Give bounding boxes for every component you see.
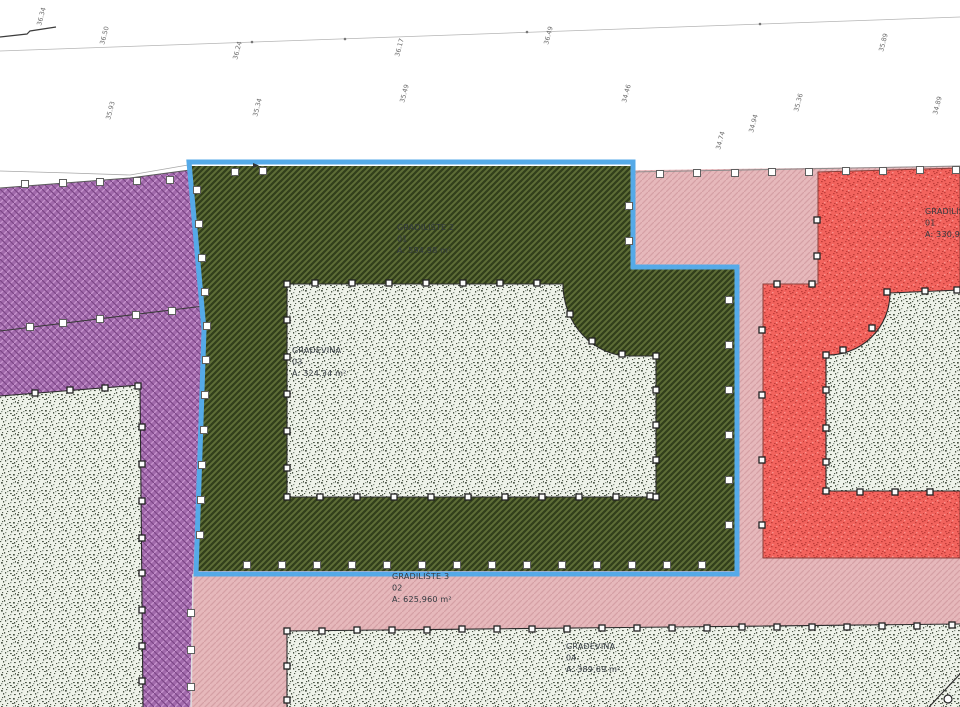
footprint-vertex-marker[interactable] bbox=[647, 493, 653, 499]
parcel-vertex-marker[interactable] bbox=[726, 432, 733, 439]
footprint-vertex-marker[interactable] bbox=[840, 347, 846, 353]
footprint-vertex-marker[interactable] bbox=[428, 494, 434, 500]
footprint-vertex-marker[interactable] bbox=[823, 425, 829, 431]
footprint-vertex-marker[interactable] bbox=[653, 457, 659, 463]
parcel-vertex-marker[interactable] bbox=[279, 562, 286, 569]
parcel-vertex-marker[interactable] bbox=[27, 324, 34, 331]
footprint-vertex-marker[interactable] bbox=[139, 424, 145, 430]
footprint-vertex-marker[interactable] bbox=[534, 280, 540, 286]
footprint-vertex-marker[interactable] bbox=[823, 488, 829, 494]
footprint-vertex-marker[interactable] bbox=[284, 428, 290, 434]
parcel-vertex-marker[interactable] bbox=[726, 477, 733, 484]
parcel-vertex-marker[interactable] bbox=[60, 180, 67, 187]
footprint-vertex-marker[interactable] bbox=[619, 351, 625, 357]
footprint-vertex-marker[interactable] bbox=[284, 628, 290, 634]
footprint-vertex-marker[interactable] bbox=[139, 607, 145, 613]
footprint-vertex-marker[interactable] bbox=[465, 494, 471, 500]
footprint-vertex-marker[interactable] bbox=[892, 489, 898, 495]
parcel-vertex-marker[interactable] bbox=[419, 562, 426, 569]
footprint-vertex-marker[interactable] bbox=[502, 494, 508, 500]
footprint-vertex-marker[interactable] bbox=[139, 570, 145, 576]
footprint-vertex-marker[interactable] bbox=[284, 663, 290, 669]
parcel-vertex-marker[interactable] bbox=[880, 168, 887, 175]
footprint-vertex-marker[interactable] bbox=[354, 627, 360, 633]
parcel-vertex-marker[interactable] bbox=[169, 308, 176, 315]
footprint-vertex-marker[interactable] bbox=[391, 494, 397, 500]
footprint-vertex-marker[interactable] bbox=[139, 678, 145, 684]
footprint-vertex-marker[interactable] bbox=[653, 494, 659, 500]
footprint-vertex-marker[interactable] bbox=[814, 217, 820, 223]
footprint-vertex-marker[interactable] bbox=[949, 622, 955, 628]
footprint-vertex-marker[interactable] bbox=[284, 317, 290, 323]
footprint-vertex-marker[interactable] bbox=[349, 280, 355, 286]
footprint-vertex-marker[interactable] bbox=[759, 457, 765, 463]
parcel-vertex-marker[interactable] bbox=[134, 178, 141, 185]
parcel-vertex-marker[interactable] bbox=[626, 238, 633, 245]
footprint-vertex-marker[interactable] bbox=[653, 422, 659, 428]
footprint-vertex-marker[interactable] bbox=[386, 280, 392, 286]
parcel-vertex-marker[interactable] bbox=[188, 610, 195, 617]
parcel-vertex-marker[interactable] bbox=[133, 312, 140, 319]
footprint-vertex-marker[interactable] bbox=[564, 626, 570, 632]
footprint-vertex-marker[interactable] bbox=[284, 354, 290, 360]
parcel-vertex-marker[interactable] bbox=[232, 169, 239, 176]
footprint-vertex-marker[interactable] bbox=[809, 281, 815, 287]
parcel-vertex-marker[interactable] bbox=[197, 532, 204, 539]
parcel-vertex-marker[interactable] bbox=[188, 647, 195, 654]
parcel-vertex-marker[interactable] bbox=[97, 316, 104, 323]
footprint-vertex-marker[interactable] bbox=[102, 385, 108, 391]
footprint-vertex-marker[interactable] bbox=[497, 280, 503, 286]
footprint-vertex-marker[interactable] bbox=[317, 494, 323, 500]
site-plan-svg: GRADILIŠTE 201A: 594,98 m²GRAĐEVINA03A: … bbox=[0, 0, 960, 707]
footprint-vertex-marker[interactable] bbox=[529, 626, 535, 632]
footprint-vertex-marker[interactable] bbox=[759, 392, 765, 398]
survey-point-dot bbox=[759, 23, 762, 26]
footprint-vertex-marker[interactable] bbox=[284, 281, 290, 287]
parcel-vertex-marker[interactable] bbox=[732, 170, 739, 177]
footprint-vertex-marker[interactable] bbox=[389, 627, 395, 633]
footprint-vertex-marker[interactable] bbox=[669, 625, 675, 631]
parcel-vertex-marker[interactable] bbox=[953, 167, 960, 174]
footprint-vertex-marker[interactable] bbox=[844, 624, 850, 630]
footprint-vertex-marker[interactable] bbox=[139, 461, 145, 467]
parcel-vertex-marker[interactable] bbox=[726, 387, 733, 394]
footprint-vertex-marker[interactable] bbox=[494, 626, 500, 632]
footprint-vertex-marker[interactable] bbox=[739, 624, 745, 630]
parcel-vertex-marker[interactable] bbox=[699, 562, 706, 569]
footprint-vertex-marker[interactable] bbox=[814, 253, 820, 259]
survey-point-dot bbox=[526, 31, 529, 34]
parcel-vertex-marker[interactable] bbox=[489, 562, 496, 569]
footprint-vertex-marker[interactable] bbox=[423, 280, 429, 286]
footprint-vertex-marker[interactable] bbox=[424, 627, 430, 633]
footprint-vertex-marker[interactable] bbox=[774, 624, 780, 630]
parcel-vertex-marker[interactable] bbox=[314, 562, 321, 569]
footprint-vertex-marker[interactable] bbox=[809, 624, 815, 630]
footprint-vertex-marker[interactable] bbox=[319, 628, 325, 634]
footprint-vertex-marker[interactable] bbox=[884, 289, 890, 295]
parcel-vertex-marker[interactable] bbox=[201, 427, 208, 434]
parcel-vertex-marker[interactable] bbox=[917, 167, 924, 174]
footprint-vertex-marker[interactable] bbox=[823, 387, 829, 393]
building-footprint-purple[interactable] bbox=[0, 385, 143, 707]
footprint-vertex-marker[interactable] bbox=[139, 498, 145, 504]
parcel-vertex-marker[interactable] bbox=[664, 562, 671, 569]
footprint-vertex-marker[interactable] bbox=[774, 281, 780, 287]
footprint-vertex-marker[interactable] bbox=[284, 391, 290, 397]
footprint-vertex-marker[interactable] bbox=[576, 494, 582, 500]
footprint-vertex-marker[interactable] bbox=[459, 626, 465, 632]
parcel-vertex-marker[interactable] bbox=[626, 203, 633, 210]
survey-point-dot bbox=[251, 41, 254, 44]
parcel-vertex-marker[interactable] bbox=[454, 562, 461, 569]
footprint-vertex-marker[interactable] bbox=[613, 494, 619, 500]
parcel-vertex-marker[interactable] bbox=[204, 323, 211, 330]
footprint-vertex-marker[interactable] bbox=[634, 625, 640, 631]
circle-vertex-marker[interactable] bbox=[944, 695, 952, 703]
footprint-vertex-marker[interactable] bbox=[653, 387, 659, 393]
parcel-vertex-marker[interactable] bbox=[244, 562, 251, 569]
parcel-vertex-marker[interactable] bbox=[60, 320, 67, 327]
footprint-vertex-marker[interactable] bbox=[922, 288, 928, 294]
parcel-vertex-marker[interactable] bbox=[199, 462, 206, 469]
footprint-vertex-marker[interactable] bbox=[284, 494, 290, 500]
parcel-vertex-marker[interactable] bbox=[196, 221, 203, 228]
parcel-vertex-marker[interactable] bbox=[199, 255, 206, 262]
parcel-vertex-marker[interactable] bbox=[524, 562, 531, 569]
parcel-vertex-marker[interactable] bbox=[349, 562, 356, 569]
parcel-vertex-marker[interactable] bbox=[594, 562, 601, 569]
parcel-vertex-marker[interactable] bbox=[188, 684, 195, 691]
footprint-vertex-marker[interactable] bbox=[354, 494, 360, 500]
parcel-vertex-marker[interactable] bbox=[806, 169, 813, 176]
parcel-vertex-marker[interactable] bbox=[198, 497, 205, 504]
footprint-vertex-marker[interactable] bbox=[704, 625, 710, 631]
parcel-vertex-marker[interactable] bbox=[843, 168, 850, 175]
survey-point-dot bbox=[344, 38, 347, 41]
footprint-vertex-marker[interactable] bbox=[653, 353, 659, 359]
footprint-vertex-marker[interactable] bbox=[67, 387, 73, 393]
footprint-vertex-marker[interactable] bbox=[599, 625, 605, 631]
parcel-vertex-marker[interactable] bbox=[22, 181, 29, 188]
footprint-vertex-marker[interactable] bbox=[589, 338, 595, 344]
footprint-vertex-marker[interactable] bbox=[879, 623, 885, 629]
parcel-vertex-marker[interactable] bbox=[769, 169, 776, 176]
parcel-vertex-marker[interactable] bbox=[97, 179, 104, 186]
parcel-vertex-marker[interactable] bbox=[194, 187, 201, 194]
parcel-vertex-marker[interactable] bbox=[203, 357, 210, 364]
parcel-vertex-marker[interactable] bbox=[629, 562, 636, 569]
footprint-vertex-marker[interactable] bbox=[927, 489, 933, 495]
building-footprint-pink[interactable] bbox=[287, 624, 960, 707]
footprint-vertex-marker[interactable] bbox=[567, 311, 573, 317]
parcel-vertex-marker[interactable] bbox=[167, 177, 174, 184]
parcel-vertex-marker[interactable] bbox=[260, 168, 267, 175]
footprint-vertex-marker[interactable] bbox=[32, 390, 38, 396]
parcel-vertex-marker[interactable] bbox=[726, 342, 733, 349]
footprint-vertex-marker[interactable] bbox=[135, 383, 141, 389]
footprint-vertex-marker[interactable] bbox=[823, 459, 829, 465]
footprint-vertex-marker[interactable] bbox=[954, 287, 960, 293]
footprint-vertex-marker[interactable] bbox=[914, 623, 920, 629]
footprint-vertex-marker[interactable] bbox=[139, 643, 145, 649]
footprint-vertex-marker[interactable] bbox=[759, 522, 765, 528]
footprint-vertex-marker[interactable] bbox=[857, 489, 863, 495]
parcel-vertex-marker[interactable] bbox=[726, 522, 733, 529]
footprint-vertex-marker[interactable] bbox=[460, 280, 466, 286]
footprint-vertex-marker[interactable] bbox=[284, 697, 290, 703]
parcel-vertex-marker[interactable] bbox=[657, 171, 664, 178]
footprint-vertex-marker[interactable] bbox=[312, 280, 318, 286]
site-plan-canvas[interactable]: GRADILIŠTE 201A: 594,98 m²GRAĐEVINA03A: … bbox=[0, 0, 960, 707]
footprint-vertex-marker[interactable] bbox=[759, 327, 765, 333]
footprint-vertex-marker[interactable] bbox=[284, 465, 290, 471]
parcel-vertex-marker[interactable] bbox=[726, 297, 733, 304]
parcel-vertex-marker[interactable] bbox=[202, 289, 209, 296]
footprint-vertex-marker[interactable] bbox=[139, 535, 145, 541]
footprint-vertex-marker[interactable] bbox=[539, 494, 545, 500]
parcel-vertex-marker[interactable] bbox=[694, 170, 701, 177]
parcel-vertex-marker[interactable] bbox=[559, 562, 566, 569]
parcel-vertex-marker[interactable] bbox=[202, 392, 209, 399]
footprint-vertex-marker[interactable] bbox=[869, 325, 875, 331]
parcel-vertex-marker[interactable] bbox=[384, 562, 391, 569]
footprint-vertex-marker[interactable] bbox=[823, 352, 829, 358]
